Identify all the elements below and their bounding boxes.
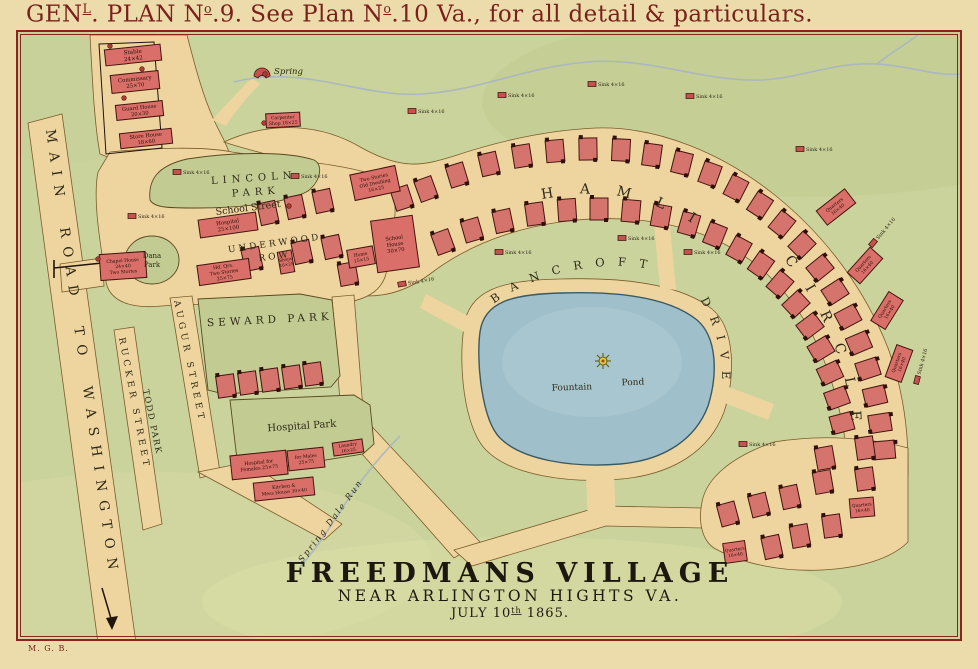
spring-label: Spring [274,67,304,77]
map-title: FREEDMANS VILLAGE [286,558,735,589]
sink-label: Sink 4×16 [183,170,210,176]
cartographer-initials: M. G. B. [28,644,69,653]
sheet-title: GENL. PLAN No.9. See Plan No.10 Va., for… [26,1,966,28]
dana-park-label-2: Park [144,261,161,269]
house [866,412,895,434]
sink-label: Sink 4×16 [138,214,165,220]
house [590,195,608,222]
well-dot [96,257,101,262]
sink-label: Sink 4×16 [508,93,535,99]
map-sheet: GENL. PLAN No.9. See Plan No.10 Va., for… [0,0,978,669]
house [215,371,237,400]
house [237,368,259,397]
building-home-small: Home15×15 [347,246,376,268]
sink-label: Sink 4×16 [696,94,723,100]
map-canvas: Stable24×42Commissary25×70Guard House20×… [18,32,962,641]
building-quarters-5: Quarters16×40 [849,497,875,518]
house [302,359,324,388]
sink-label: Sink 4×16 [628,236,655,242]
fountain-icon [595,353,611,369]
house [524,199,546,228]
building-carpenter-shop: CarpenterShop 18×25 [266,112,301,128]
sink-label: Sink 4×16 [598,82,625,88]
map-date: JULY 10th 1865. [449,606,569,622]
fountain-pond-group [479,293,714,465]
ring-spur-south [586,476,616,522]
house [579,135,597,162]
well-dot [108,44,113,49]
fountain-pond-label-2: Pond [621,378,644,389]
sink-label: Sink 4×16 [301,174,328,180]
sink-label: Sink 4×16 [505,250,532,256]
building-hospital-females: Hospital forFemales 25×75 [230,450,288,480]
sink-label: Sink 4×16 [806,147,833,153]
building-hospital-males: for Males25×75 [287,447,325,471]
map-subtitle: NEAR ARLINGTON HIGHTS VA. [338,587,683,605]
well-dot [140,67,145,72]
well-dot [122,96,127,101]
sink-label: Sink 4×16 [418,109,445,115]
building-chapel-house: Chapel House24×40Two Stories [99,251,147,280]
fountain-pond-label-1: Fountain [552,382,593,393]
sink-label: Sink 4×16 [694,250,721,256]
house [259,365,281,394]
dana-park-label-1: Dana [143,252,161,260]
well-dot [263,72,268,77]
building-school-house: SchoolHouse30×70 [371,215,420,272]
house [511,141,533,170]
well-dot [262,121,267,126]
house [545,136,565,164]
house [854,464,876,493]
house [611,136,630,164]
house [821,511,843,540]
house [281,362,303,391]
well-dot [287,204,292,209]
sink-label: Sink 4×16 [749,442,776,448]
map-frame: Stable24×42Commissary25×70Guard House20×… [16,30,962,641]
